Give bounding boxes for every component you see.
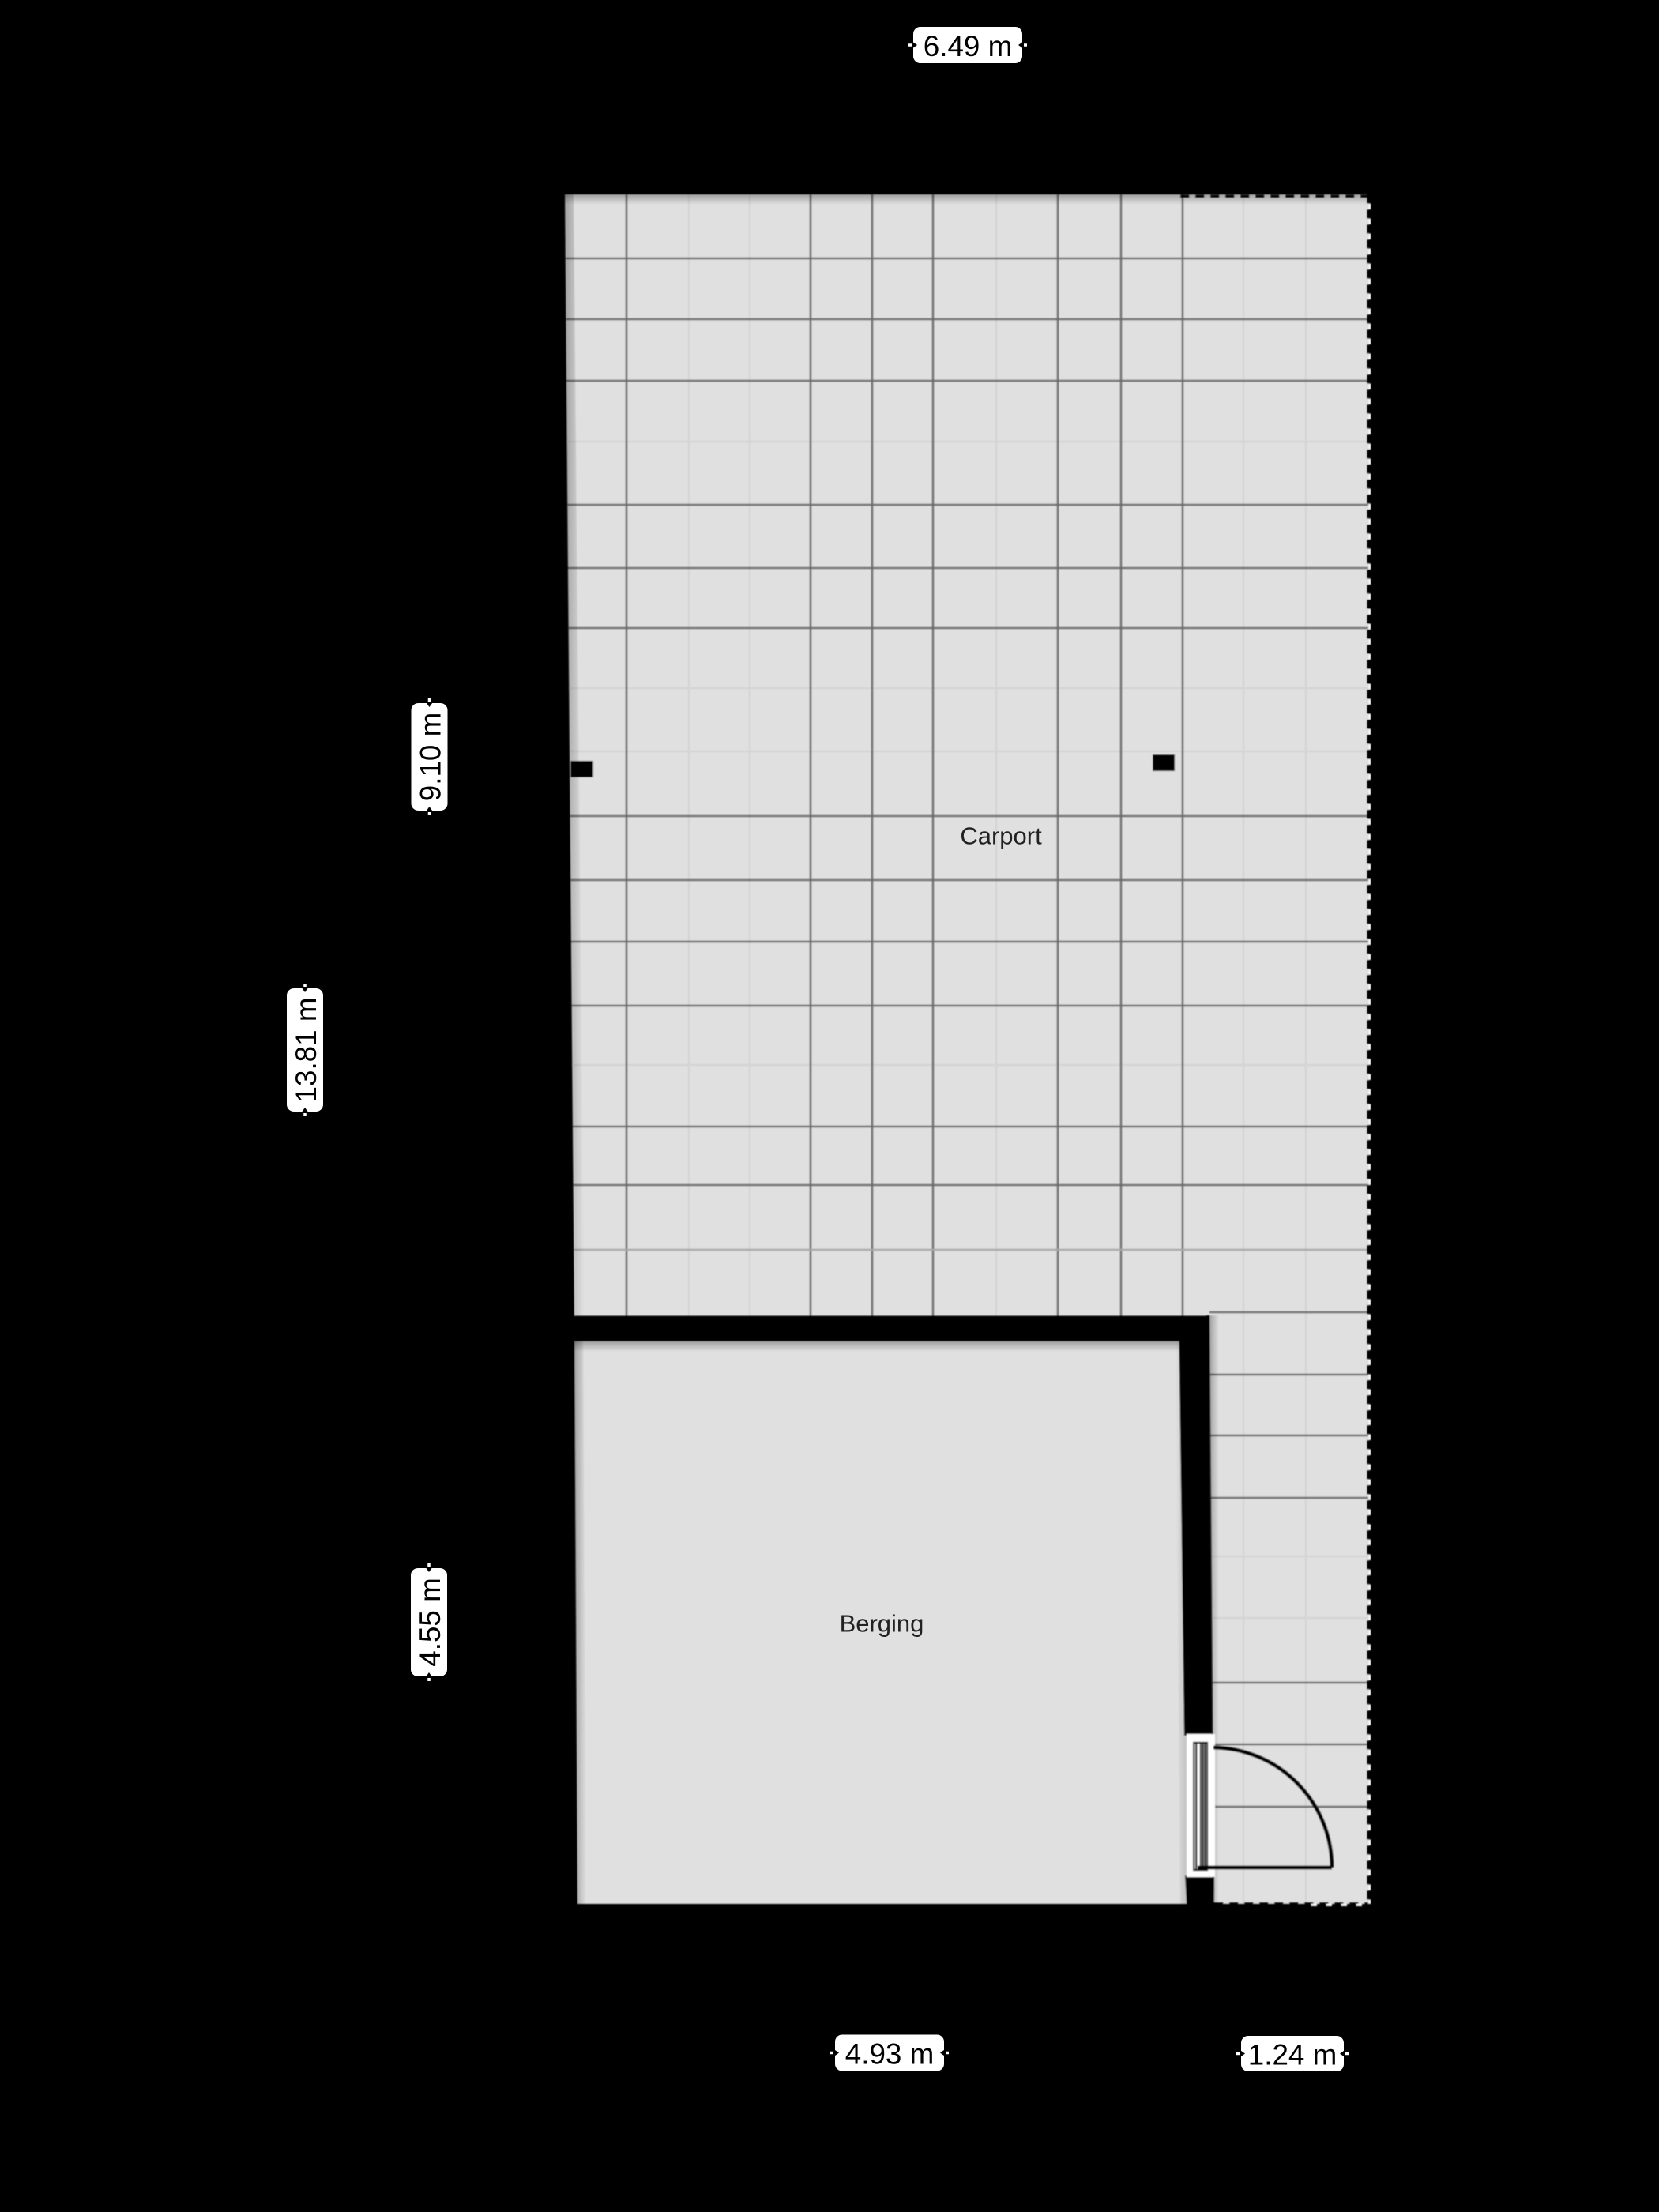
- svg-text:4.55 m: 4.55 m: [414, 1578, 446, 1667]
- svg-text:Carport: Carport: [960, 822, 1042, 850]
- svg-text:9.10 m: 9.10 m: [415, 713, 447, 802]
- svg-text:13.81 m: 13.81 m: [290, 998, 322, 1103]
- svg-text:Berging: Berging: [840, 1610, 924, 1638]
- svg-text:1.24 m: 1.24 m: [1248, 2039, 1337, 2071]
- svg-text:4.93 m: 4.93 m: [845, 2038, 935, 2071]
- svg-text:6.49 m: 6.49 m: [924, 30, 1013, 62]
